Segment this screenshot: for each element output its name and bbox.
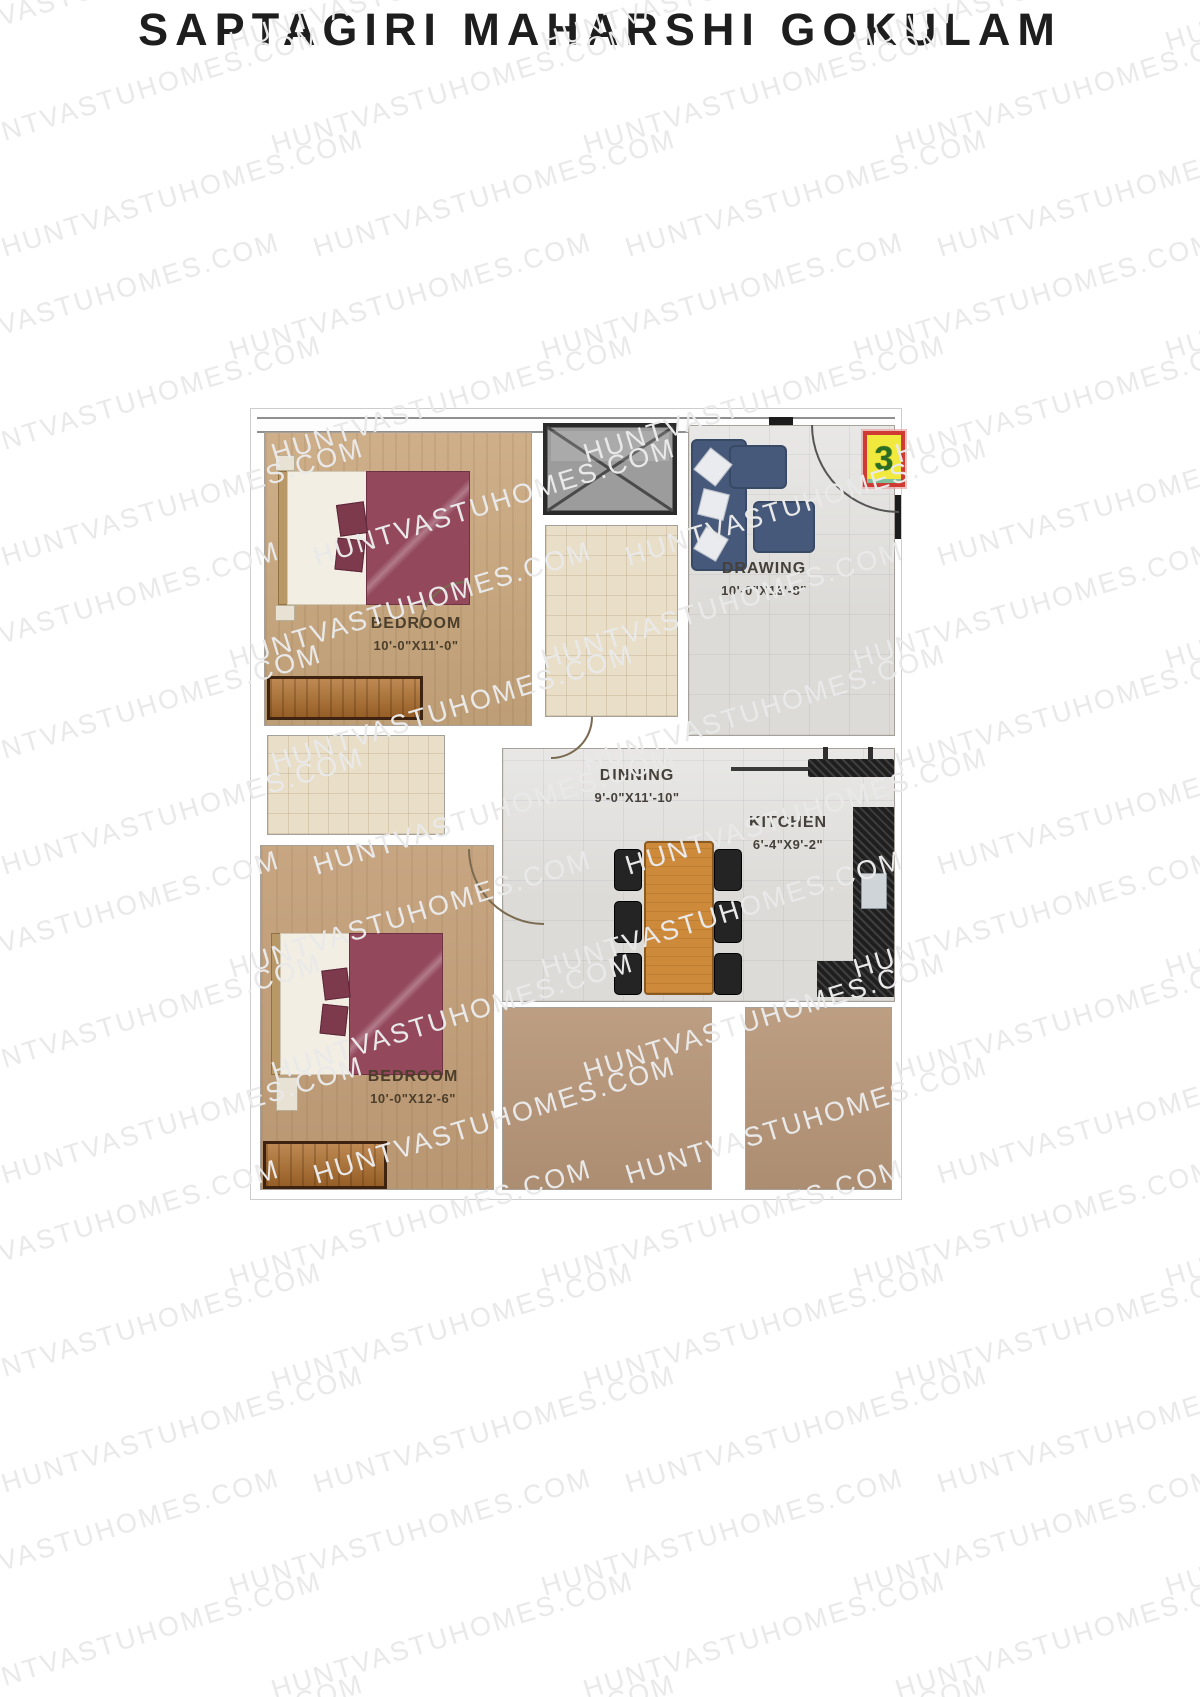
watermark-text: HUNTVASTUHOMES.COM (892, 329, 1200, 469)
watermark-text: HUNTVASTUHOMES.COM (892, 638, 1200, 778)
bed-mattress (287, 471, 368, 605)
watermark-text: HUNTVASTUHOMES.COM (850, 844, 1200, 984)
watermark-text: HUNTVASTUHOMES.COM (892, 1256, 1200, 1396)
kitchen-shelf-rail (731, 767, 811, 771)
wardrobe (263, 1141, 387, 1189)
page-title: SAPTAGIRI MAHARSHI GOKULAM (0, 4, 1200, 56)
watermark-text: HUNTVASTUHOMES.COM (892, 1565, 1200, 1697)
watermark-text: HUNTVASTUHOMES.COM (1162, 844, 1200, 984)
chair (714, 849, 742, 891)
watermark-text: HUNTVASTUHOMES.COM (0, 535, 284, 675)
room-label-kitchen: KITCHEN 6'-4"X9'-2" (708, 811, 868, 855)
watermark-text: HUNTVASTUHOMES.COM (850, 1153, 1200, 1293)
utility-right-floor (746, 1008, 891, 1189)
watermark-text: HUNTVASTUHOMES.COM (1162, 1153, 1200, 1293)
kitchen-counter-top (808, 759, 894, 777)
watermark-text: HUNTVASTUHOMES.COM (0, 1256, 326, 1396)
watermark-text: HUNTVASTUHOMES.COM (934, 1668, 1200, 1697)
watermark-text: HUNTVASTUHOMES.COM (0, 1565, 326, 1697)
sofa-ottoman (753, 501, 815, 553)
watermark-text: HUNTVASTUHOMES.COM (622, 123, 992, 263)
watermark-text: HUNTVASTUHOMES.COM (622, 1359, 992, 1499)
watermark-text: HUNTVASTUHOMES.COM (850, 535, 1200, 675)
watermark-text: HUNTVASTUHOMES.COM (226, 226, 596, 366)
utility-left-floor (503, 1008, 711, 1189)
watermark-text: HUNTVASTUHOMES.COM (0, 1153, 284, 1293)
watermark-text: HUNTVASTUHOMES.COM (0, 123, 368, 263)
watermark-text: HUNTVASTUHOMES.COM (934, 1359, 1200, 1499)
watermark-text: HUNTVASTUHOMES.COM (580, 1256, 950, 1396)
watermark-text: HUNTVASTUHOMES.COM (850, 1462, 1200, 1602)
room-label-dinning: DINNING 9'-0"X11'-10" (537, 764, 737, 808)
watermark-text: HUNTVASTUHOMES.COM (0, 1359, 368, 1499)
watermark-text: HUNTVASTUHOMES.COM (892, 947, 1200, 1087)
counter-handle (823, 747, 828, 760)
watermark-text: HUNTVASTUHOMES.COM (0, 844, 284, 984)
chair (714, 953, 742, 995)
watermark-text: HUNTVASTUHOMES.COM (538, 226, 908, 366)
bed-pillow (336, 501, 368, 537)
bed (278, 471, 468, 603)
watermark-text: HUNTVASTUHOMES.COM (934, 432, 1200, 572)
watermark-text: HUNTVASTUHOMES.COM (310, 1359, 680, 1499)
room-label-bedroom-bottom: BEDROOM 10'-0"X12'-6" (313, 1065, 513, 1109)
watermark-text: HUNTVASTUHOMES.COM (850, 226, 1200, 366)
watermark-text: HUNTVASTUHOMES.COM (268, 1256, 638, 1396)
page: SAPTAGIRI MAHARSHI GOKULAM (0, 0, 1200, 1697)
bed-mattress (280, 933, 351, 1075)
watermark-text: HUNTVASTUHOMES.COM (580, 1565, 950, 1697)
watermark-text: HUNTVASTUHOMES.COM (934, 123, 1200, 263)
bed-pillow (320, 1004, 349, 1037)
bathroom-left-floor (268, 736, 444, 834)
chair (714, 901, 742, 943)
nightstand (275, 455, 295, 471)
watermark-text: HUNTVASTUHOMES.COM (268, 1565, 638, 1697)
watermark-text: HUNTVASTUHOMES.COM (934, 1050, 1200, 1190)
bathroom-center-floor (546, 526, 677, 716)
watermark-text: HUNTVASTUHOMES.COM (310, 123, 680, 263)
watermark-text: HUNTVASTUHOMES.COM (0, 226, 284, 366)
watermark-text: HUNTVASTUHOMES.COM (310, 1668, 680, 1697)
watermark-text: HUNTVASTUHOMES.COM (1162, 1462, 1200, 1602)
staircase (543, 423, 677, 515)
bed-pillow (334, 538, 365, 573)
wardrobe (267, 676, 423, 720)
floor-plan: BEDROOM 10'-0"X11'-0" DRAWING 10'-0"X13'… (250, 408, 902, 1200)
room-label-drawing: DRAWING 10'-0"X13'-8" (681, 557, 847, 601)
chair (614, 953, 642, 995)
chair (614, 849, 642, 891)
watermark-text: HUNTVASTUHOMES.COM (622, 1668, 992, 1697)
side-table (276, 1077, 298, 1111)
watermark-text: HUNTVASTUHOMES.COM (1162, 226, 1200, 366)
dining-table (644, 841, 714, 995)
watermark-text: HUNTVASTUHOMES.COM (934, 741, 1200, 881)
room-label-bedroom-top: BEDROOM 10'-0"X11'-0" (316, 612, 516, 656)
sofa (729, 445, 787, 489)
counter-handle (868, 747, 873, 760)
watermark-text: HUNTVASTUHOMES.COM (1162, 535, 1200, 675)
watermark-text: HUNTVASTUHOMES.COM (226, 1462, 596, 1602)
bed-pillow (321, 968, 350, 1001)
bed-blanket (349, 933, 443, 1075)
unit-number-badge: 3 (863, 431, 905, 487)
watermark-text: HUNTVASTUHOMES.COM (538, 1462, 908, 1602)
nightstand (275, 605, 295, 621)
watermark-text: HUNTVASTUHOMES.COM (0, 1462, 284, 1602)
bed (271, 933, 441, 1073)
watermark-text: HUNTVASTUHOMES.COM (0, 1668, 368, 1697)
chair (614, 901, 642, 943)
kitchen-counter-bottom (817, 961, 894, 997)
